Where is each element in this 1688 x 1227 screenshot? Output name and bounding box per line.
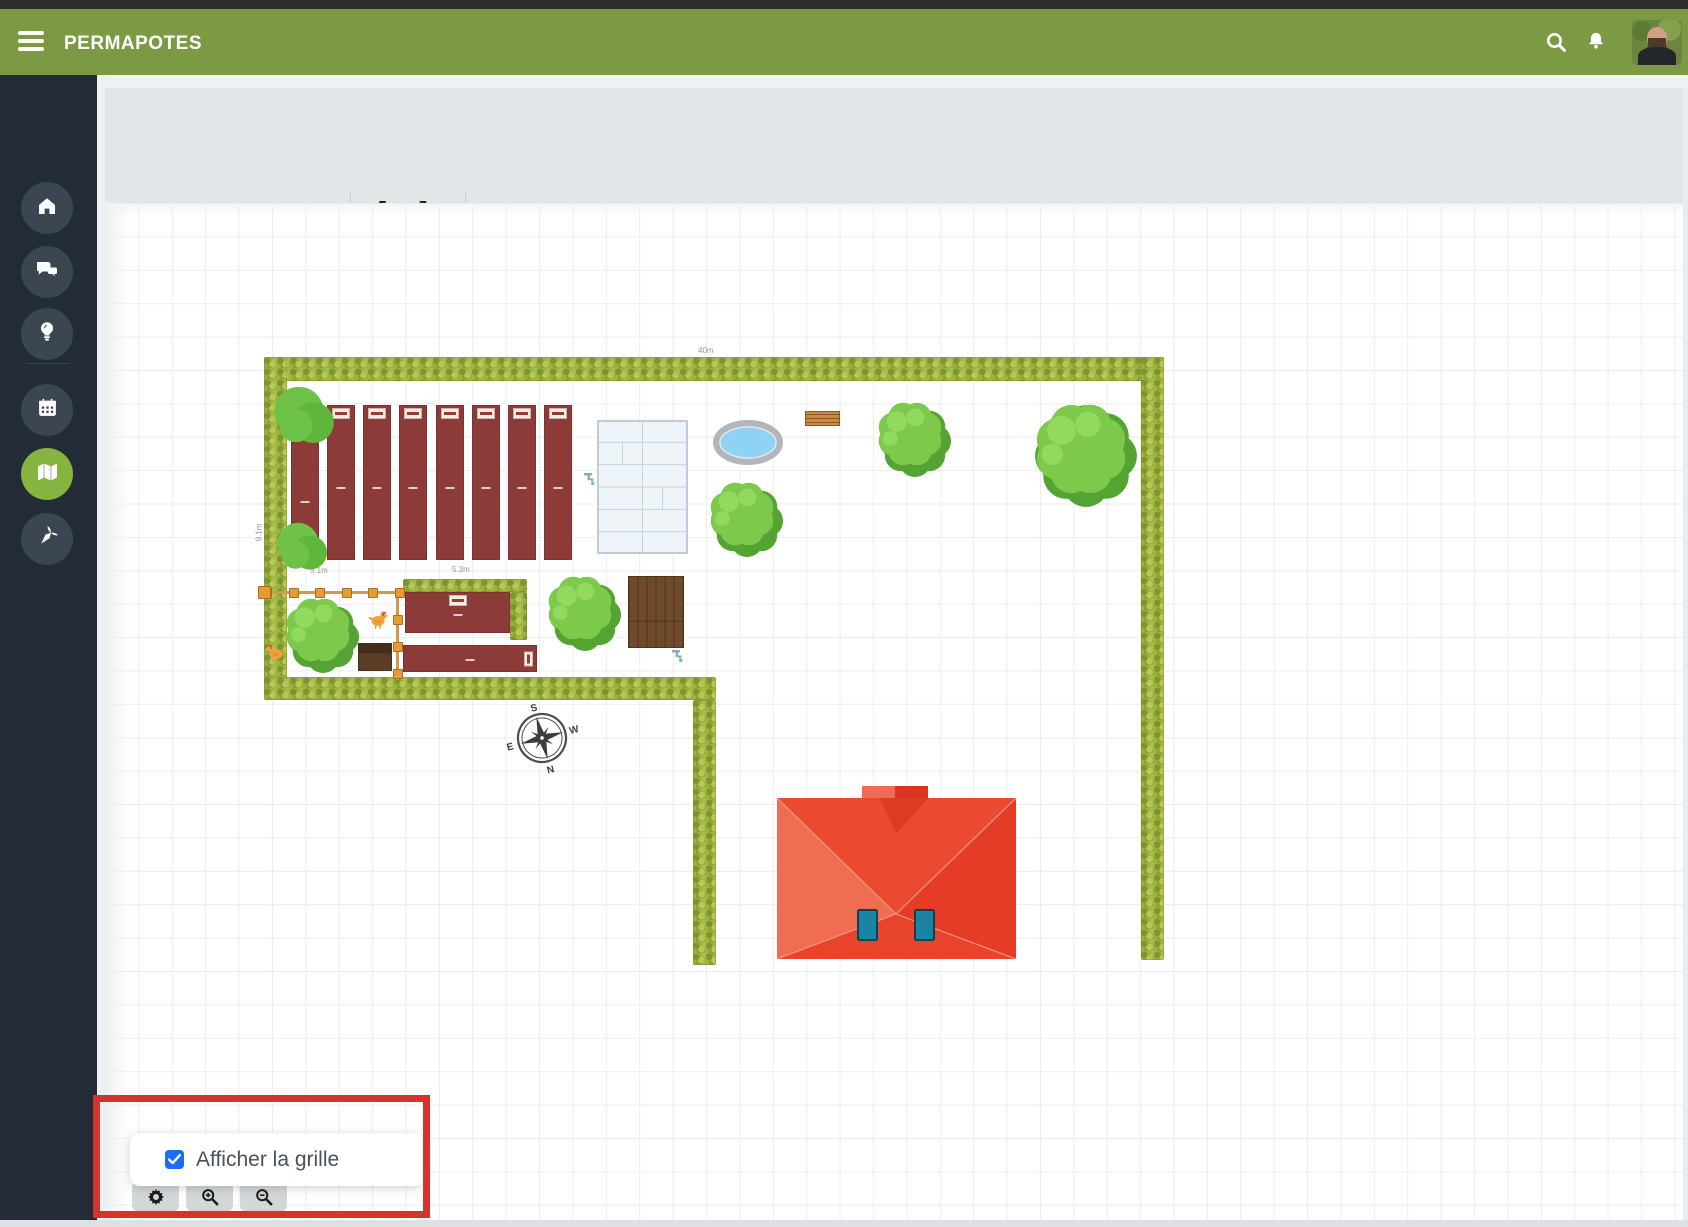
- calendar-icon: [37, 397, 58, 423]
- show-grid-label: Afficher la grille: [196, 1148, 339, 1172]
- compass-rose[interactable]: S W N E: [504, 700, 580, 776]
- plan-canvas[interactable]: [105, 203, 1683, 1220]
- svg-text:N: N: [546, 764, 556, 776]
- top-strip: [0, 0, 1688, 9]
- tree-middle[interactable]: [871, 396, 953, 478]
- app-header: PERMAPOTES: [0, 9, 1688, 75]
- tree-large-right[interactable]: [1028, 397, 1138, 507]
- home-icon: [36, 196, 58, 221]
- bed-label-chip: [368, 408, 386, 419]
- avatar[interactable]: [1632, 20, 1682, 65]
- show-grid-checkbox[interactable]: [165, 1150, 184, 1169]
- sidebar-item-calendar[interactable]: [21, 384, 73, 436]
- garden-bed-h2[interactable]: [403, 645, 537, 672]
- sidebar-item-home[interactable]: [21, 182, 73, 234]
- bed-label-chip: [513, 408, 531, 419]
- chicken-2[interactable]: [264, 641, 286, 663]
- garden-bed-7[interactable]: [508, 405, 536, 560]
- sidebar-item-ideas[interactable]: [21, 308, 73, 360]
- svg-text:E: E: [506, 741, 516, 753]
- lightbulb-icon: [39, 321, 55, 348]
- gear-icon: [147, 1188, 165, 1206]
- chicken-1[interactable]: [368, 608, 390, 630]
- search-icon[interactable]: [1536, 22, 1576, 62]
- editor-toolbar: Enregistrer ↺ ↻ A •••: [105, 88, 1688, 203]
- zoom-out-icon: [255, 1188, 273, 1206]
- zoom-in-icon: [201, 1188, 219, 1206]
- greenhouse[interactable]: [597, 420, 688, 554]
- garden-bed-6[interactable]: [472, 405, 500, 560]
- tree-chicken-run[interactable]: [279, 592, 361, 674]
- bed-label-chip: [477, 408, 495, 419]
- sidebar: [0, 75, 97, 1220]
- garden-bed-h1[interactable]: [405, 592, 510, 633]
- scrollbar-track: [1683, 88, 1688, 1220]
- hedge-inner-bottom[interactable]: [264, 677, 716, 700]
- sidebar-item-map[interactable]: [21, 448, 73, 500]
- garden-bed-5[interactable]: [436, 405, 464, 560]
- sidebar-item-garden[interactable]: [21, 513, 73, 565]
- faucet-greenhouse[interactable]: [583, 470, 597, 486]
- bed-label-chip: [441, 408, 459, 419]
- bed-label-chip: [449, 595, 467, 606]
- hedge-right[interactable]: [1141, 357, 1164, 960]
- garden-bed-8[interactable]: [544, 405, 572, 560]
- hedge-top[interactable]: [264, 357, 1164, 381]
- bell-icon[interactable]: [1576, 22, 1616, 62]
- tree-below-pond[interactable]: [703, 476, 785, 558]
- map-icon: [36, 462, 59, 487]
- svg-text:S: S: [529, 702, 539, 714]
- carrot-icon: [36, 525, 59, 553]
- app-title: PERMAPOTES: [64, 33, 202, 55]
- bottom-strip: [0, 1220, 1688, 1227]
- grid-toggle-popup: Afficher la grille: [130, 1133, 425, 1186]
- hedge-run-top[interactable]: [403, 579, 527, 592]
- chat-icon: [35, 260, 59, 285]
- pond[interactable]: [712, 419, 784, 466]
- shed[interactable]: [628, 576, 684, 648]
- house[interactable]: [777, 786, 1016, 959]
- bed-label-chip: [404, 408, 422, 419]
- faucet-shed[interactable]: [671, 647, 685, 663]
- garden-bed-3[interactable]: [363, 405, 391, 560]
- bench[interactable]: [805, 411, 840, 426]
- bed-label-chip: [524, 651, 533, 666]
- bed-label-chip: [549, 408, 567, 419]
- hedge-run-right[interactable]: [510, 592, 527, 640]
- sidebar-item-messages[interactable]: [21, 246, 73, 298]
- menu-icon[interactable]: [18, 31, 44, 53]
- hedge-inner-vertical[interactable]: [693, 700, 716, 965]
- garden-bed-4[interactable]: [399, 405, 427, 560]
- tree-near-shed[interactable]: [541, 570, 623, 652]
- tree-left-lower[interactable]: [271, 515, 335, 579]
- svg-text:W: W: [568, 724, 581, 737]
- tree-top-left[interactable]: [268, 379, 342, 453]
- sidebar-divider: [26, 363, 70, 364]
